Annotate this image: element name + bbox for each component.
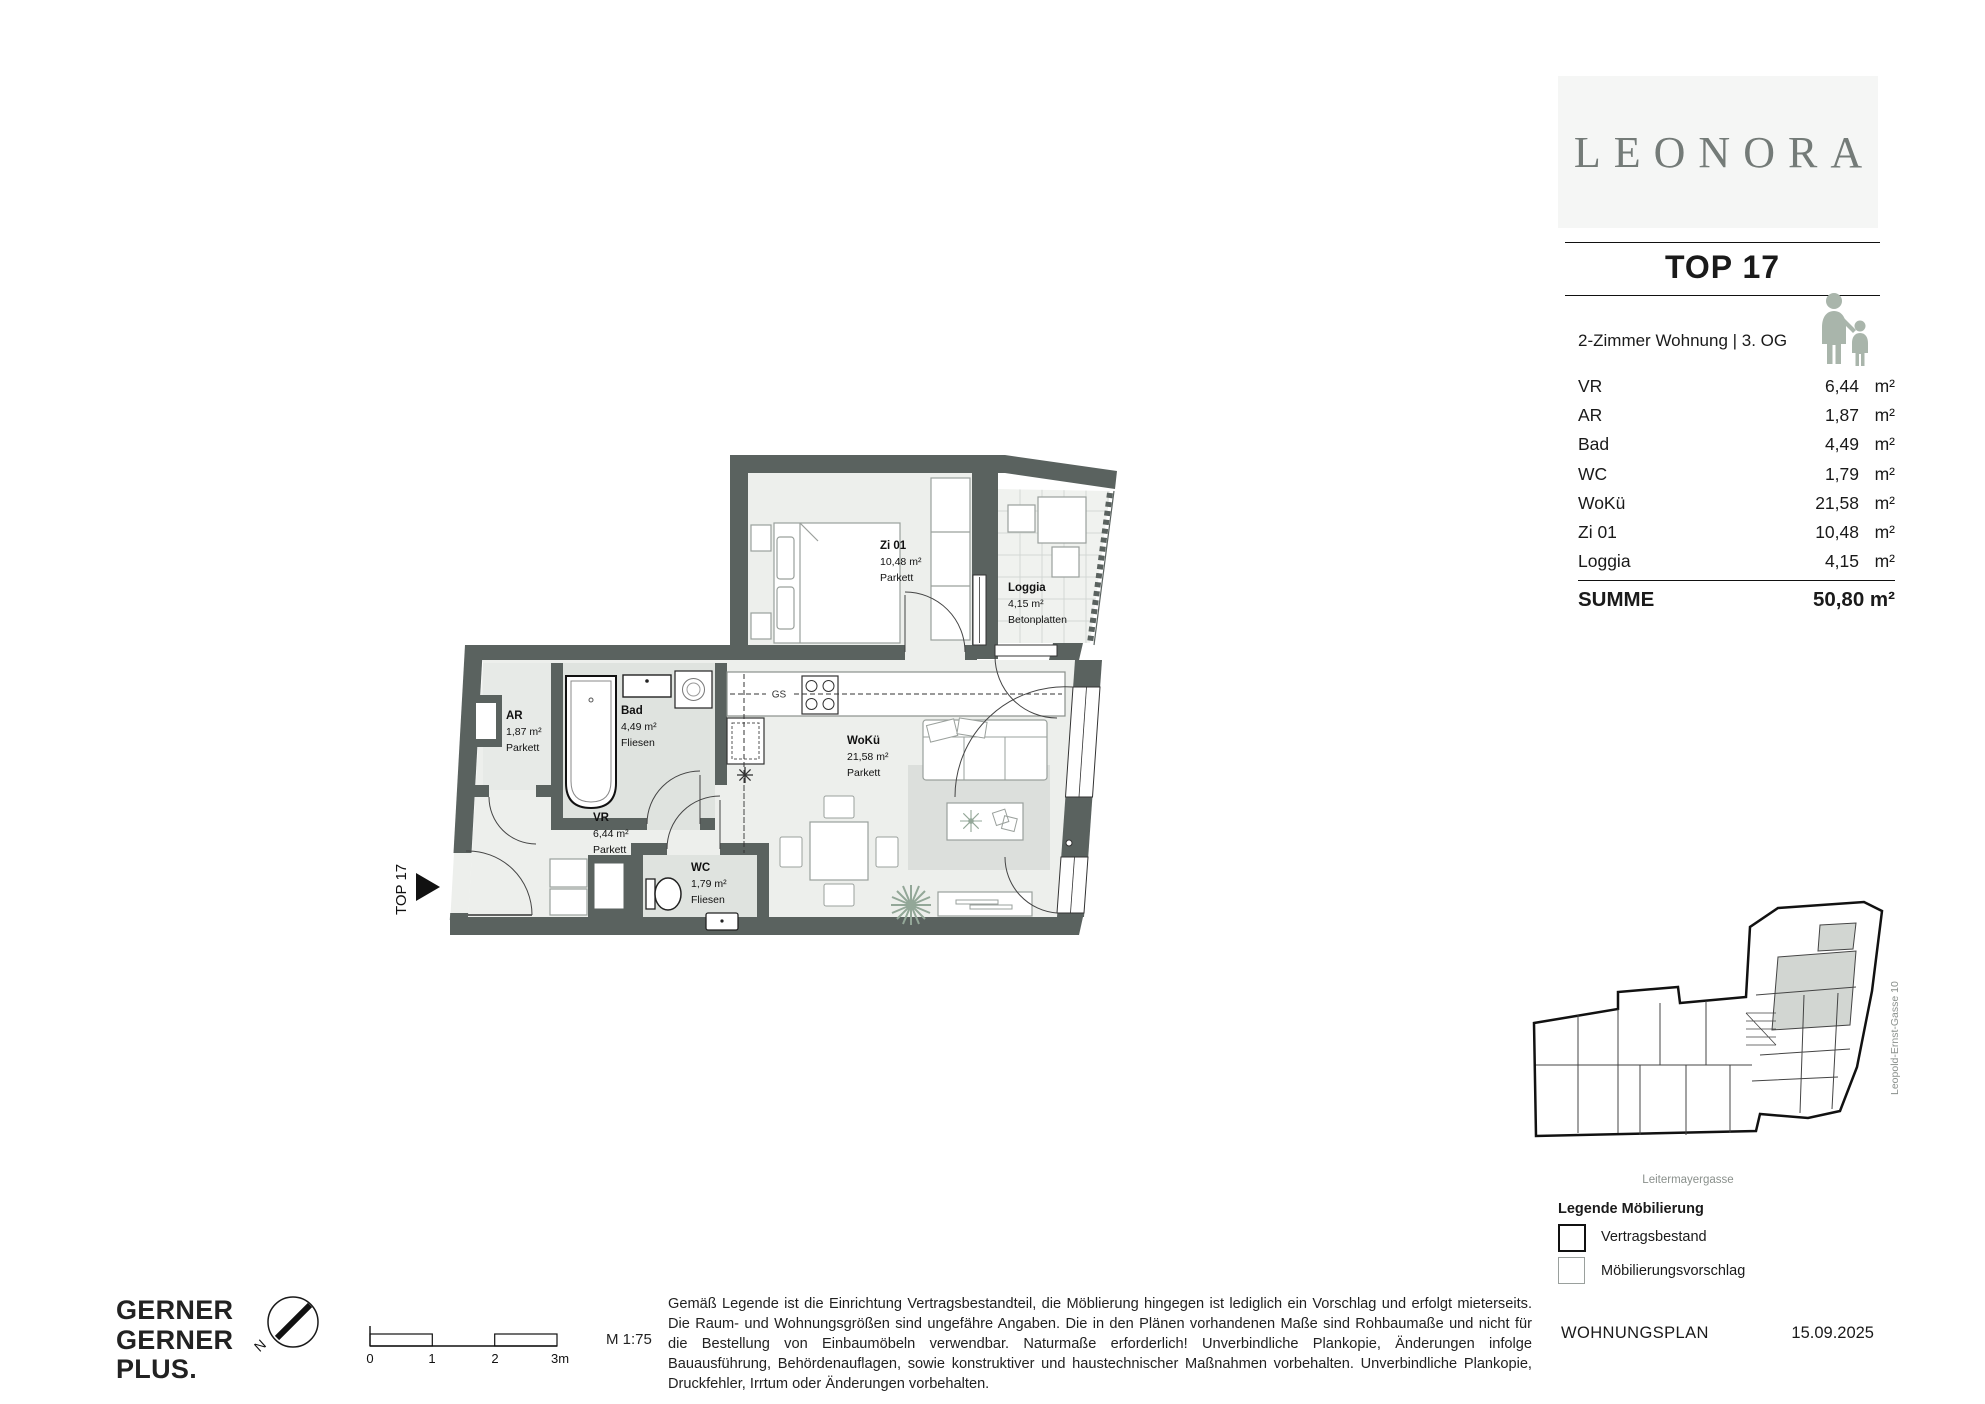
table-row: AR 1,87 m² [1578, 401, 1895, 430]
sink-symbol [737, 767, 753, 783]
architect-logo: GERNER GERNER PLUS. [116, 1296, 233, 1385]
fridge [727, 718, 764, 764]
scale-tick: 1 [428, 1351, 435, 1366]
room-area: 4,49 m² [621, 721, 657, 733]
project-logo: LEONORA [1561, 127, 1875, 178]
document-date: 15.09.2025 [1768, 1324, 1874, 1343]
room-label: WoKü [847, 735, 880, 747]
room-label: Bad [621, 705, 643, 717]
legend-swatch-vertragsbestand [1558, 1224, 1586, 1252]
room-floor: Parkett [506, 742, 539, 754]
washing-machine [675, 671, 712, 708]
entrance-marker: TOP 17 [393, 864, 440, 915]
site-plan: Leitermayergasse Leopold-Ernst-Gasse 10 [1520, 895, 1920, 1195]
row-room: Zi 01 [1578, 522, 1797, 543]
project-logo-box: LEONORA [1558, 76, 1878, 228]
room-floor: Parkett [593, 844, 626, 856]
architect-logo-line: GERNER [116, 1296, 233, 1326]
row-room: WoKü [1578, 493, 1797, 514]
row-unit: m² [1859, 405, 1895, 426]
disclaimer-text: Gemäß Legende ist die Einrichtung Vertra… [668, 1295, 1532, 1395]
row-unit: m² [1859, 522, 1895, 543]
room-label: Loggia [1008, 582, 1046, 594]
room-area: 21,58 m² [847, 751, 889, 763]
table-total-row: SUMME 50,80 m² [1578, 581, 1895, 619]
floor-plan: GS [370, 445, 1130, 970]
highlighted-unit [1818, 923, 1856, 951]
room-area: 1,87 m² [506, 726, 542, 738]
scale-tick: 3m [551, 1351, 569, 1366]
loggia-door-leaf [995, 645, 1057, 656]
row-room: WC [1578, 464, 1797, 485]
architect-logo-line: GERNER [116, 1326, 233, 1356]
legend-item-label: Vertragsbestand [1601, 1229, 1707, 1245]
row-value: 21,58 [1797, 493, 1859, 514]
table-row: WoKü 21,58 m² [1578, 489, 1895, 518]
row-unit: m² [1859, 434, 1895, 455]
row-value: 6,44 [1797, 376, 1859, 397]
total-label: SUMME [1578, 588, 1813, 612]
room-floor: Fliesen [691, 894, 725, 906]
row-room: Loggia [1578, 551, 1797, 572]
table-row: VR 6,44 m² [1578, 372, 1895, 401]
washbasin [623, 675, 671, 697]
dishwasher-label: GS [772, 690, 787, 701]
row-unit: m² [1859, 551, 1895, 572]
room-floor: Betonplatten [1008, 614, 1067, 626]
toilet [655, 878, 681, 910]
table-row: WC 1,79 m² [1578, 460, 1895, 489]
room-label: Zi 01 [880, 540, 907, 552]
architect-logo-line: PLUS. [116, 1355, 233, 1385]
row-value: 4,49 [1797, 434, 1859, 455]
row-unit: m² [1859, 464, 1895, 485]
legend-swatch-moebilierungsvorschlag [1558, 1257, 1585, 1284]
coffee-table [947, 803, 1023, 840]
legend-title: Legende Möbilierung [1558, 1201, 1704, 1217]
street-label: Leitermayergasse [1642, 1174, 1733, 1186]
row-value: 10,48 [1797, 522, 1859, 543]
hall-wardrobe [550, 859, 587, 915]
room-area: 10,48 m² [880, 556, 922, 568]
plan-sheet: { "header": { "project": "LEONORA", "top… [0, 0, 1985, 1404]
scale-label: M 1:75 [606, 1331, 652, 1348]
room-area: 6,44 m² [593, 828, 629, 840]
room-area: 1,79 m² [691, 878, 727, 890]
street-label: Leopold-Ernst-Gasse 10 [1889, 981, 1901, 1095]
family-icon [1812, 292, 1878, 366]
table-row: Bad 4,49 m² [1578, 430, 1895, 459]
wall-niche [476, 703, 496, 739]
room-floor: Parkett [880, 572, 913, 584]
divider [1565, 242, 1880, 243]
north-compass-icon: N [240, 1288, 340, 1378]
entrance-opening [451, 853, 472, 913]
row-value: 1,79 [1797, 464, 1859, 485]
shaft-opening [594, 863, 624, 909]
row-room: Bad [1578, 434, 1797, 455]
room-floor: Fliesen [621, 737, 655, 749]
room-label: WC [691, 862, 710, 874]
table-row: Zi 01 10,48 m² [1578, 518, 1895, 547]
row-unit: m² [1859, 376, 1895, 397]
bathtub [566, 676, 616, 808]
unit-subtitle: 2-Zimmer Wohnung | 3. OG [1578, 331, 1787, 351]
entrance-label: TOP 17 [393, 864, 410, 915]
north-letter: N [251, 1336, 269, 1355]
room-floor: Parkett [847, 767, 880, 779]
row-value: 4,15 [1797, 551, 1859, 572]
dining-table [810, 822, 868, 880]
scale-tick: 2 [491, 1351, 498, 1366]
area-table: VR 6,44 m² AR 1,87 m² Bad 4,49 m² WC 1,7… [1578, 372, 1895, 619]
row-room: VR [1578, 376, 1797, 397]
entrance-arrow-icon [416, 873, 440, 901]
row-value: 1,87 [1797, 405, 1859, 426]
document-type: WOHNUNGSPLAN [1561, 1324, 1709, 1343]
room-area: 4,15 m² [1008, 598, 1044, 610]
toilet-tank [646, 879, 655, 909]
row-unit: m² [1859, 493, 1895, 514]
scale-tick: 0 [366, 1351, 373, 1366]
unit-title: TOP 17 [1565, 249, 1880, 286]
legend-item-label: Möbilierungsvorschlag [1601, 1263, 1745, 1279]
room-label: VR [593, 812, 610, 824]
total-value: 50,80 m² [1813, 588, 1895, 612]
room-label: AR [506, 710, 523, 722]
row-room: AR [1578, 405, 1797, 426]
table-row: Loggia 4,15 m² [1578, 547, 1895, 576]
